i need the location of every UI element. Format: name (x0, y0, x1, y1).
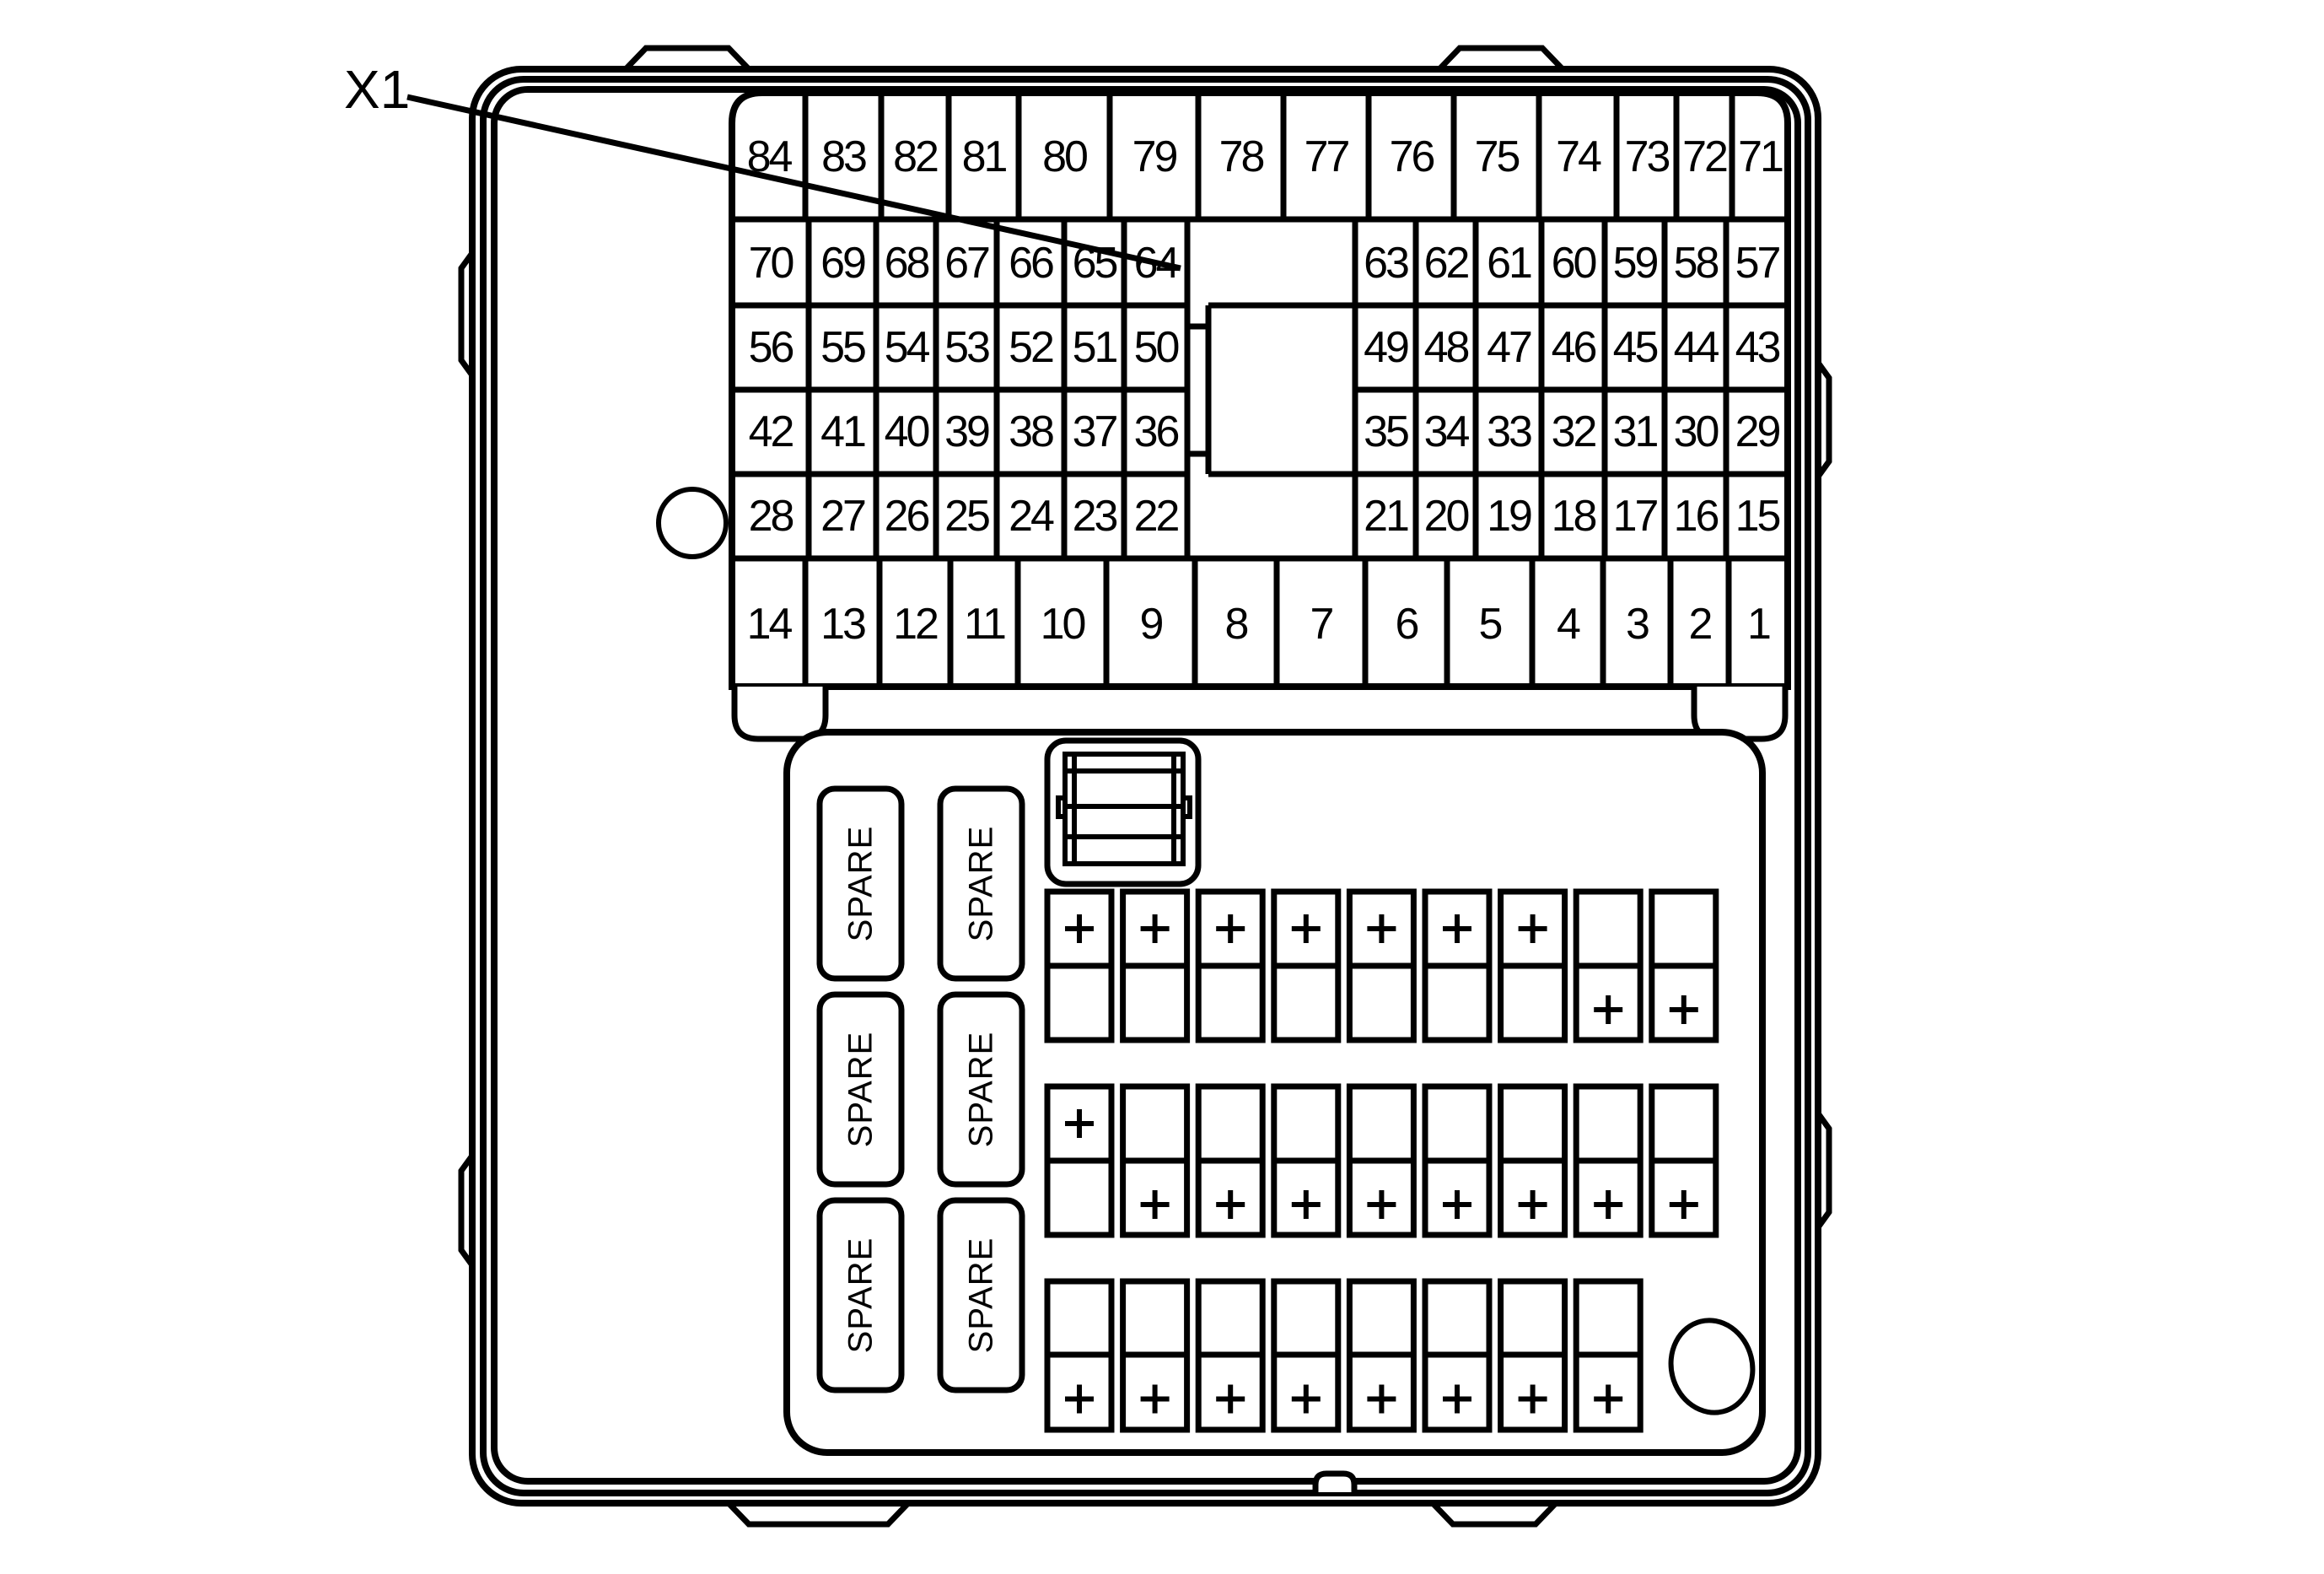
fuse-number-33: 33 (1487, 407, 1531, 456)
fuse-number-49: 49 (1364, 323, 1408, 372)
spare-fuse-label: SPARE (963, 1032, 1000, 1148)
fuse-number-62: 62 (1424, 239, 1469, 288)
fuse-number-3: 3 (1626, 600, 1649, 649)
fuse-number-20: 20 (1424, 492, 1469, 541)
mini-fuse (1047, 1281, 1111, 1430)
spare-fuse: SPARE (940, 1200, 1022, 1390)
fuse-number-52: 52 (1009, 323, 1053, 372)
fuse-number-79: 79 (1132, 132, 1177, 181)
fuse-number-19: 19 (1487, 492, 1531, 541)
spare-fuse-label: SPARE (842, 826, 880, 942)
fuse-number-81: 81 (962, 132, 1007, 181)
fuse-number-2: 2 (1689, 600, 1712, 649)
fuse-number-40: 40 (885, 407, 929, 456)
fuse-number-51: 51 (1073, 323, 1117, 372)
fuse-number-28: 28 (749, 492, 793, 541)
fuse-number-66: 66 (1009, 239, 1053, 288)
fuse-number-39: 39 (944, 407, 989, 456)
fuse-number-16: 16 (1674, 492, 1719, 541)
fuse-number-83: 83 (821, 132, 866, 181)
fuse-number-12: 12 (893, 600, 938, 649)
fuse-number-5: 5 (1479, 600, 1502, 649)
mini-fuse (1047, 892, 1111, 1040)
fuse-number-56: 56 (749, 323, 793, 372)
fuse-number-68: 68 (885, 239, 929, 288)
connector-label: X1 (344, 59, 410, 120)
fuse-number-55: 55 (820, 323, 865, 372)
fuse-number-9: 9 (1140, 600, 1163, 649)
fuse-number-27: 27 (820, 492, 865, 541)
bottom-center-latch (1315, 1474, 1354, 1492)
fuse-number-77: 77 (1305, 132, 1349, 181)
mini-fuse-group (1047, 892, 1716, 1430)
fuse-number-54: 54 (885, 323, 930, 372)
fuse-number-42: 42 (749, 407, 793, 456)
mini-fuse (1123, 1086, 1187, 1235)
fuse-number-14: 14 (747, 600, 793, 649)
fuse-number-10: 10 (1041, 600, 1085, 649)
fuse-number-29: 29 (1735, 407, 1780, 456)
fuse-number-6: 6 (1396, 600, 1418, 649)
fuse-number-41: 41 (820, 407, 865, 456)
fuse-number-47: 47 (1487, 323, 1531, 372)
mini-fuse (1425, 892, 1489, 1040)
fuse-number-44: 44 (1674, 323, 1719, 372)
spare-fuse: SPARE (820, 789, 901, 978)
fuse-block-diagram: 8483828180797877767574737271706968676665… (0, 0, 2324, 1574)
fuse-number-43: 43 (1735, 323, 1780, 372)
spare-fuse: SPARE (940, 789, 1022, 978)
mini-fuse (1274, 1086, 1338, 1235)
fuse-number-31: 31 (1613, 407, 1658, 456)
fuse-number-13: 13 (820, 600, 865, 649)
mini-fuse (1425, 1086, 1489, 1235)
fuse-number-8: 8 (1225, 600, 1248, 649)
fuse-number-63: 63 (1364, 239, 1408, 288)
fuse-number-24: 24 (1009, 492, 1054, 541)
fuse-number-25: 25 (944, 492, 989, 541)
spare-fuse: SPARE (820, 1200, 901, 1390)
fuse-number-11: 11 (964, 600, 1005, 649)
mini-fuse (1576, 892, 1640, 1040)
fuse-number-7: 7 (1310, 600, 1333, 649)
mini-fuse (1652, 1086, 1716, 1235)
spare-fuse-label: SPARE (842, 1237, 880, 1354)
fuse-number-78: 78 (1219, 132, 1264, 181)
lower-panel: SPARESPARESPARESPARESPARESPARE (787, 732, 1762, 1453)
fuse-number-70: 70 (749, 239, 793, 288)
mini-fuse (1198, 1086, 1262, 1235)
fuse-number-58: 58 (1674, 239, 1719, 288)
mini-fuse (1349, 1281, 1413, 1430)
fuse-number-1: 1 (1747, 600, 1770, 649)
spare-fuse: SPARE (940, 995, 1022, 1184)
spare-fuse-label: SPARE (963, 826, 1000, 942)
mini-fuse (1047, 1086, 1111, 1235)
fuse-number-26: 26 (885, 492, 929, 541)
fuse-number-67: 67 (944, 239, 989, 288)
fuse-number-18: 18 (1552, 492, 1596, 541)
fuse-number-22: 22 (1134, 492, 1179, 541)
mini-fuse (1123, 1281, 1187, 1430)
fuse-number-73: 73 (1625, 132, 1670, 181)
mini-fuse (1349, 1086, 1413, 1235)
fuse-number-57: 57 (1735, 239, 1780, 288)
fuse-number-61: 61 (1487, 239, 1531, 288)
fuse-number-17: 17 (1613, 492, 1658, 541)
fuse-number-21: 21 (1364, 492, 1408, 541)
mini-fuse (1576, 1281, 1640, 1430)
mini-fuse (1274, 1281, 1338, 1430)
fuse-number-75: 75 (1475, 132, 1520, 181)
mini-fuse (1274, 892, 1338, 1040)
fuse-number-74: 74 (1556, 132, 1601, 181)
mini-fuse (1501, 1086, 1565, 1235)
fuse-number-80: 80 (1042, 132, 1087, 181)
fuse-number-59: 59 (1613, 239, 1658, 288)
fuse-number-32: 32 (1552, 407, 1596, 456)
mini-fuse (1501, 892, 1565, 1040)
fuse-number-30: 30 (1674, 407, 1719, 456)
mini-fuse (1198, 892, 1262, 1040)
mini-fuse (1576, 1086, 1640, 1235)
fuse-number-76: 76 (1390, 132, 1434, 181)
fuse-number-82: 82 (893, 132, 938, 181)
fuse-number-69: 69 (820, 239, 865, 288)
fuse-number-15: 15 (1735, 492, 1780, 541)
fuse-number-45: 45 (1613, 323, 1658, 372)
fuse-number-37: 37 (1073, 407, 1117, 456)
fuse-number-38: 38 (1009, 407, 1053, 456)
fuse-number-23: 23 (1073, 492, 1117, 541)
diagram-canvas: 8483828180797877767574737271706968676665… (0, 0, 2324, 1574)
fuse-number-50: 50 (1134, 323, 1179, 372)
mini-fuse (1123, 892, 1187, 1040)
spare-fuse-label: SPARE (963, 1237, 1000, 1354)
mini-fuse (1425, 1281, 1489, 1430)
fuse-number-46: 46 (1552, 323, 1596, 372)
fuse-number-72: 72 (1682, 132, 1727, 181)
fuse-number-34: 34 (1424, 407, 1470, 456)
fuse-number-60: 60 (1552, 239, 1596, 288)
mini-fuse (1652, 892, 1716, 1040)
fuse-number-48: 48 (1424, 323, 1469, 372)
fuse-number-71: 71 (1738, 132, 1783, 181)
spare-fuse-label: SPARE (842, 1032, 880, 1148)
fuse-number-36: 36 (1134, 407, 1179, 456)
fuse-number-35: 35 (1364, 407, 1408, 456)
spare-fuse: SPARE (820, 995, 901, 1184)
grid-foot-left (734, 687, 826, 739)
fuse-number-53: 53 (944, 323, 989, 372)
mini-fuse (1501, 1281, 1565, 1430)
mini-fuse (1349, 892, 1413, 1040)
fuse-number-4: 4 (1557, 600, 1580, 649)
mini-fuse (1198, 1281, 1262, 1430)
main-fuse-grid: 8483828180797877767574737271706968676665… (732, 93, 1788, 739)
